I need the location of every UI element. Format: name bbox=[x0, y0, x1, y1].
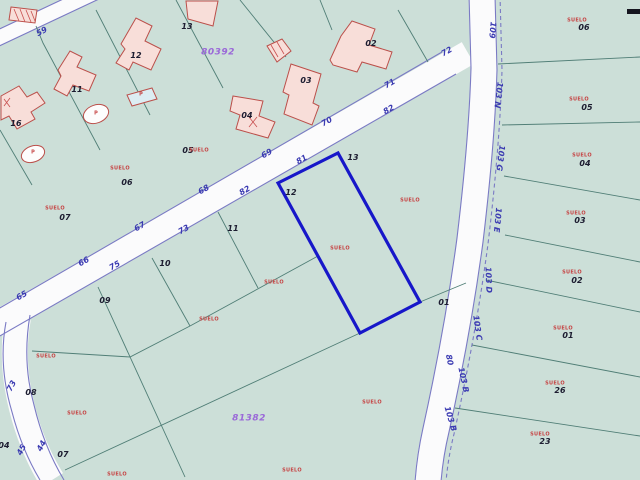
road-number: 72 bbox=[440, 46, 454, 58]
land-use-label: SUELO bbox=[545, 382, 565, 387]
parcel-number: 10 bbox=[159, 260, 170, 268]
parcel-number: 02 bbox=[365, 40, 376, 48]
land-use-label: SUELO bbox=[264, 281, 284, 286]
parcel-number: 13 bbox=[347, 154, 358, 162]
labels-layer: 6566676869707172757382818259734544109103… bbox=[0, 0, 640, 480]
parcel-number: 16 bbox=[10, 120, 21, 128]
parcel-number: 13 bbox=[181, 23, 192, 31]
road-number: 45 bbox=[16, 443, 28, 457]
land-use-label: SUELO bbox=[45, 207, 65, 212]
parcel-number: 05 bbox=[581, 104, 592, 112]
road-number: 69 bbox=[260, 148, 274, 160]
land-use-label: SUELO bbox=[330, 247, 350, 252]
land-use-label: SUELO bbox=[110, 167, 130, 172]
land-use-label: SUELO bbox=[362, 401, 382, 406]
map-canvas[interactable]: 6566676869707172757382818259734544109103… bbox=[0, 0, 640, 480]
road-number: 70 bbox=[320, 116, 334, 128]
road-number: 68 bbox=[197, 184, 211, 196]
parcel-number: 07 bbox=[59, 214, 70, 222]
land-use-label: SUELO bbox=[566, 212, 586, 217]
parcel-number: 07 bbox=[57, 451, 68, 459]
parcel-number: 03 bbox=[300, 77, 311, 85]
road-number: 59 bbox=[35, 26, 49, 38]
land-use-label: SUELO bbox=[530, 433, 550, 438]
land-use-label: SUELO bbox=[36, 355, 56, 360]
pool-mark: P bbox=[31, 151, 35, 156]
road-number: 103 D bbox=[484, 267, 493, 293]
land-use-label: SUELO bbox=[572, 154, 592, 159]
land-use-label: SUELO bbox=[567, 19, 587, 24]
road-number: 75 bbox=[108, 260, 122, 272]
parcel-number: 03 bbox=[574, 217, 585, 225]
road-number: 73 bbox=[177, 224, 191, 236]
road-number: 73 bbox=[6, 379, 18, 393]
parcel-number: 09 bbox=[99, 297, 110, 305]
parcel-number: 06 bbox=[121, 179, 132, 187]
land-use-label: SUELO bbox=[199, 318, 219, 323]
road-number: 67 bbox=[133, 221, 147, 233]
parcel-number: 08 bbox=[25, 389, 36, 397]
block-number: 81382 bbox=[232, 415, 266, 424]
land-use-label: SUELO bbox=[562, 271, 582, 276]
road-number: 103 B bbox=[443, 406, 458, 433]
road-number: 44 bbox=[36, 439, 48, 453]
parcel-number: 04 bbox=[579, 160, 590, 168]
road-number: 65 bbox=[15, 290, 29, 302]
road-number: 82 bbox=[382, 104, 396, 116]
pool-mark: P bbox=[94, 112, 98, 117]
land-use-label: SUELO bbox=[189, 149, 209, 154]
road-number: 103 G bbox=[494, 145, 505, 172]
parcel-number: 12 bbox=[130, 52, 141, 60]
road-number: 66 bbox=[77, 256, 91, 268]
road-number: 103 B bbox=[456, 367, 469, 394]
road-number: 71 bbox=[383, 78, 397, 90]
road-number: 81 bbox=[295, 154, 309, 166]
land-use-label: SUELO bbox=[67, 412, 87, 417]
land-use-label: SUELO bbox=[553, 327, 573, 332]
parcel-number: 11 bbox=[71, 86, 82, 94]
road-number: 103 E bbox=[492, 207, 502, 233]
land-use-label: SUELO bbox=[400, 199, 420, 204]
land-use-label: SUELO bbox=[107, 473, 127, 478]
parcel-number: 04 bbox=[0, 442, 10, 450]
road-number: 103 N bbox=[492, 82, 503, 109]
parcel-number: 02 bbox=[571, 277, 582, 285]
pool-mark: P bbox=[139, 93, 143, 98]
land-use-label: SUELO bbox=[569, 98, 589, 103]
block-number: 80392 bbox=[201, 49, 235, 58]
parcel-number: 26 bbox=[554, 387, 565, 395]
parcel-number: 12 bbox=[285, 189, 296, 197]
road-number: 82 bbox=[238, 185, 252, 197]
parcel-number: 11 bbox=[227, 225, 238, 233]
parcel-number: 23 bbox=[539, 438, 550, 446]
land-use-label: SUELO bbox=[282, 469, 302, 474]
road-number: 109 bbox=[487, 21, 496, 38]
parcel-number: 04 bbox=[241, 112, 252, 120]
parcel-number: 01 bbox=[438, 299, 449, 307]
road-number: 103 C bbox=[471, 315, 482, 341]
parcel-number: 06 bbox=[578, 24, 589, 32]
parcel-number: 01 bbox=[562, 332, 573, 340]
road-number: 80 bbox=[444, 354, 454, 367]
